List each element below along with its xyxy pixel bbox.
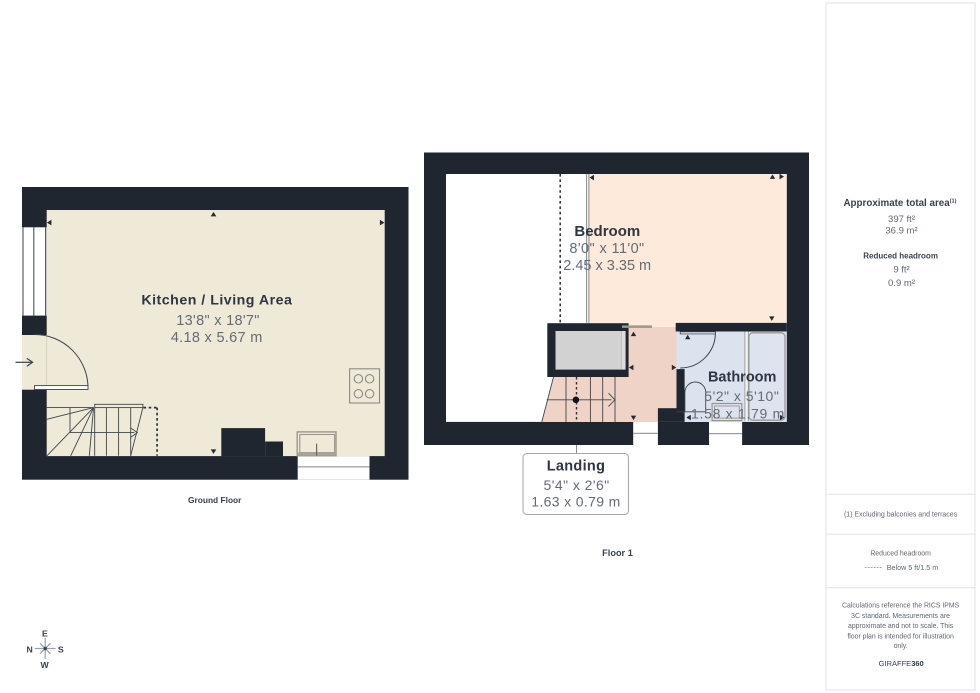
svg-text:5'2" x 5'10": 5'2" x 5'10" — [704, 388, 779, 404]
svg-text:3C standard. Measurements are: 3C standard. Measurements are — [851, 613, 950, 620]
svg-text:Below 5 ft/1.5 m: Below 5 ft/1.5 m — [887, 563, 939, 572]
svg-text:GIRAFFE360: GIRAFFE360 — [879, 659, 924, 668]
svg-text:S: S — [58, 644, 64, 654]
svg-text:397 ft²: 397 ft² — [888, 214, 915, 225]
svg-text:Bathroom: Bathroom — [708, 370, 776, 386]
svg-text:Reduced headroom: Reduced headroom — [863, 252, 938, 261]
svg-text:4.18 x 5.67 m: 4.18 x 5.67 m — [171, 330, 263, 346]
svg-text:1.58 x 1.79 m: 1.58 x 1.79 m — [691, 406, 785, 422]
svg-text:Reduced headroom: Reduced headroom — [870, 550, 931, 557]
svg-text:(1) Excluding balconies and te: (1) Excluding balconies and terraces — [844, 511, 958, 518]
svg-text:5'4" x 2'6": 5'4" x 2'6" — [544, 477, 610, 493]
svg-text:approximate and not to scale.: approximate and not to scale. This — [848, 623, 954, 630]
svg-text:Ground Floor: Ground Floor — [188, 495, 242, 505]
svg-text:W: W — [40, 660, 49, 670]
svg-text:floor plan is intended for ill: floor plan is intended for illustration — [847, 633, 954, 640]
svg-text:E: E — [42, 628, 48, 638]
svg-text:8'0" x 11'0": 8'0" x 11'0" — [569, 241, 644, 257]
svg-text:Floor 1: Floor 1 — [602, 548, 633, 558]
svg-text:Bedroom: Bedroom — [574, 223, 640, 240]
svg-text:1.63 x 0.79 m: 1.63 x 0.79 m — [531, 493, 620, 509]
svg-text:9 ft²: 9 ft² — [893, 264, 909, 275]
svg-text:Landing: Landing — [547, 459, 605, 475]
svg-text:Calculations reference the RIC: Calculations reference the RICS IPMS — [842, 603, 960, 610]
svg-text:only.: only. — [894, 643, 908, 650]
svg-text:0.9 m²: 0.9 m² — [888, 278, 915, 289]
svg-text:13'8" x 18'7": 13'8" x 18'7" — [176, 313, 259, 329]
svg-text:36.9 m²: 36.9 m² — [885, 225, 917, 236]
svg-text:2.45 x 3.35 m: 2.45 x 3.35 m — [563, 258, 651, 274]
svg-text:Kitchen / Living Area: Kitchen / Living Area — [141, 293, 292, 309]
svg-text:Approximate total area(1): Approximate total area(1) — [843, 198, 956, 209]
svg-text:N: N — [26, 644, 32, 654]
